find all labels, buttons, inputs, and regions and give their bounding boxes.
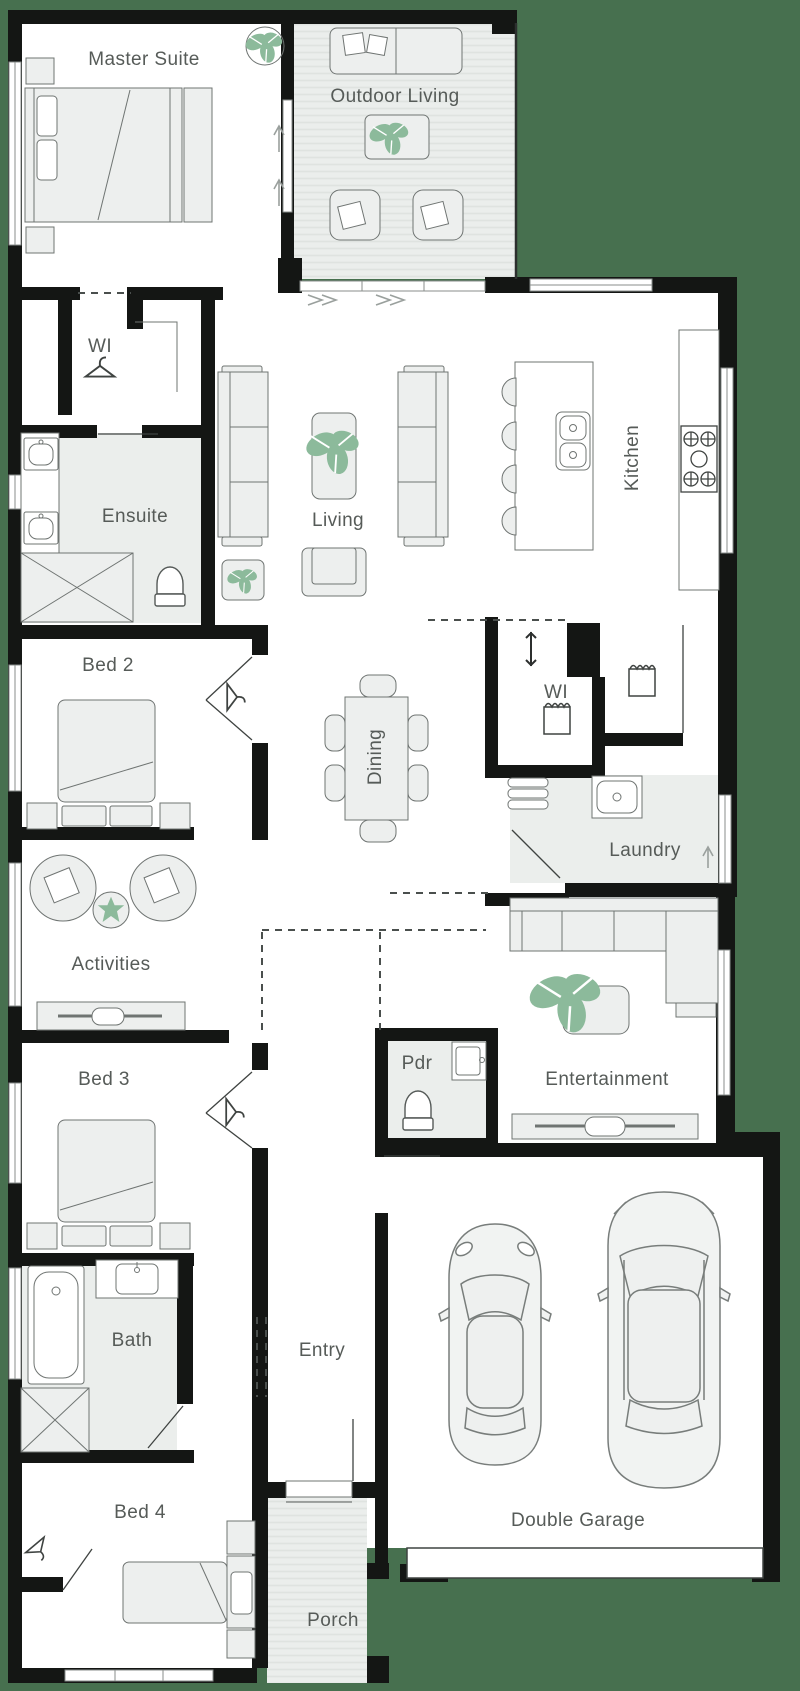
dining-chair — [360, 675, 396, 697]
sofa — [218, 366, 268, 546]
toilet — [403, 1091, 433, 1130]
dining-table — [345, 697, 408, 820]
dining-chair — [325, 765, 345, 801]
porch-deck — [267, 1497, 367, 1683]
outdoor-armchair — [413, 190, 463, 240]
side-table — [222, 560, 264, 600]
garage-door — [407, 1548, 763, 1578]
toilet — [155, 567, 185, 606]
bedside-table — [26, 227, 54, 253]
dining-chair — [325, 715, 345, 751]
kitchen-niche — [681, 295, 717, 325]
plant-table — [93, 892, 129, 928]
desk — [37, 1002, 185, 1030]
towel-stack — [508, 778, 548, 809]
floor-plan-drawing — [0, 0, 800, 1691]
wardrobe — [184, 88, 212, 222]
round-chair — [130, 855, 196, 921]
bedside-table — [26, 58, 54, 84]
front-door-threshold — [286, 1481, 352, 1497]
laundry-sink — [592, 776, 642, 818]
shower — [21, 1388, 89, 1452]
basin — [24, 512, 58, 544]
vanity — [96, 1260, 178, 1298]
bed4-window — [65, 1670, 213, 1681]
dining-chair — [408, 715, 428, 751]
outdoor-armchair — [330, 190, 380, 240]
wardrobe — [170, 88, 182, 222]
outdoor-coffee-table — [365, 115, 429, 159]
floor-plan: Master Suite Outdoor Living WI Ensuite L… — [0, 0, 800, 1691]
sliding-door — [300, 281, 485, 291]
shower — [21, 553, 133, 622]
basin — [24, 438, 58, 470]
tv-unit — [512, 1114, 698, 1139]
master-glass-door — [283, 100, 292, 212]
pdr-basin — [452, 1042, 486, 1080]
bathtub — [28, 1266, 84, 1384]
island-sink — [556, 412, 590, 470]
sofa — [398, 366, 448, 546]
car — [439, 1224, 551, 1465]
master-bed — [25, 88, 177, 222]
armchair — [302, 548, 366, 596]
outdoor-sofa — [330, 28, 462, 74]
cooktop — [681, 426, 717, 492]
car — [598, 1192, 730, 1488]
dining-chair — [360, 820, 396, 842]
round-chair — [30, 855, 96, 921]
dining-chair — [408, 765, 428, 801]
